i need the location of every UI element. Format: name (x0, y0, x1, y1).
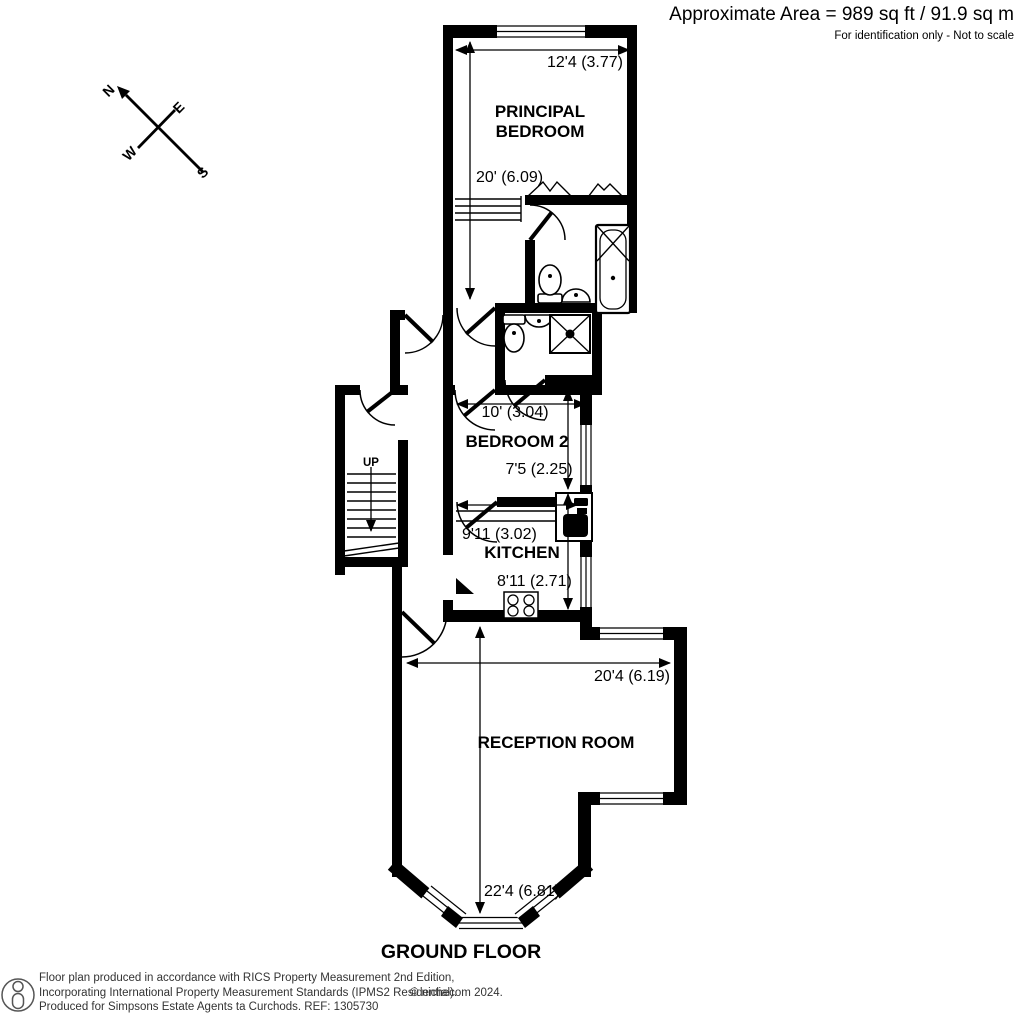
door-arc (405, 315, 443, 353)
kitchen-label: KITCHEN (484, 543, 560, 562)
door-leaf (456, 578, 474, 594)
floor-title: GROUND FLOOR (381, 941, 541, 963)
window (580, 425, 592, 485)
footer-copyright: © nichecom 2024. (410, 987, 503, 999)
reception-label: RECEPTION ROOM (478, 733, 635, 752)
compass-needle (126, 95, 203, 172)
door-arc (530, 205, 565, 240)
stairs-up-label: UP (363, 457, 379, 469)
hob-icon (504, 592, 538, 618)
floor-plan-page: Approximate Area = 989 sq ft / 91.9 sq m… (0, 0, 1024, 1020)
compass-rose: N E W S (99, 81, 211, 181)
footer: Floor plan produced in accordance with R… (2, 972, 503, 1013)
footer-line2: Incorporating International Property Mea… (39, 987, 457, 999)
bathtub-icon (596, 225, 630, 313)
nichecom-logo-icon (2, 979, 34, 1011)
door-arc (360, 390, 395, 425)
room-labels: 12'4 (3.77) PRINCIPAL BEDROOM 20' (6.09)… (381, 54, 670, 963)
floor-plan-svg: Approximate Area = 989 sq ft / 91.9 sq m… (0, 0, 1024, 1020)
window (580, 557, 592, 607)
approx-area-text: Approximate Area = 989 sq ft / 91.9 sq m (669, 4, 1014, 25)
window (497, 25, 585, 38)
kitchen-counter (456, 511, 556, 521)
basin-icon (562, 289, 590, 302)
bedroom2-width: 10' (3.04) (481, 404, 548, 421)
window (600, 792, 663, 805)
principal-bedroom-length: 20' (6.09) (476, 169, 543, 186)
toilet-icon (503, 315, 525, 352)
shower-icon (550, 315, 590, 353)
stairs: UP (344, 457, 399, 556)
compass-crossbar (138, 110, 175, 148)
principal-bedroom-label: BEDROOM (496, 122, 585, 141)
principal-bedroom-label: PRINCIPAL (495, 102, 585, 121)
ensuite-fixtures (538, 225, 630, 313)
disclaimer-text: For identification only - Not to scale (834, 30, 1014, 42)
kitchen-sink-icon (556, 493, 592, 541)
footer-line3: Produced for Simpsons Estate Agents ta C… (39, 1001, 378, 1013)
bedroom2-label: BEDROOM 2 (466, 432, 569, 451)
compass-s-label: S (194, 164, 212, 182)
footer-line1: Floor plan produced in accordance with R… (39, 972, 455, 984)
window (459, 916, 523, 930)
header: Approximate Area = 989 sq ft / 91.9 sq m… (669, 4, 1014, 42)
bedroom2-length: 7'5 (2.25) (505, 461, 572, 478)
door-arc (402, 612, 447, 657)
kitchen-length: 8'11 (2.71) (497, 573, 572, 590)
window (600, 627, 663, 640)
reception-width: 20'4 (6.19) (594, 668, 670, 685)
toilet-icon (538, 265, 562, 303)
reception-length: 22'4 (6.81) (484, 883, 560, 900)
basin-icon (525, 315, 553, 327)
principal-bedroom-width: 12'4 (3.77) (547, 54, 623, 71)
door-arc (457, 308, 495, 346)
shower-room-fixtures (503, 315, 590, 353)
wardrobe-shelves (455, 196, 521, 222)
compass-n-label: N (99, 81, 117, 99)
compass-w-label: W (119, 143, 140, 164)
kitchen-width: 9'11 (3.02) (462, 526, 537, 543)
